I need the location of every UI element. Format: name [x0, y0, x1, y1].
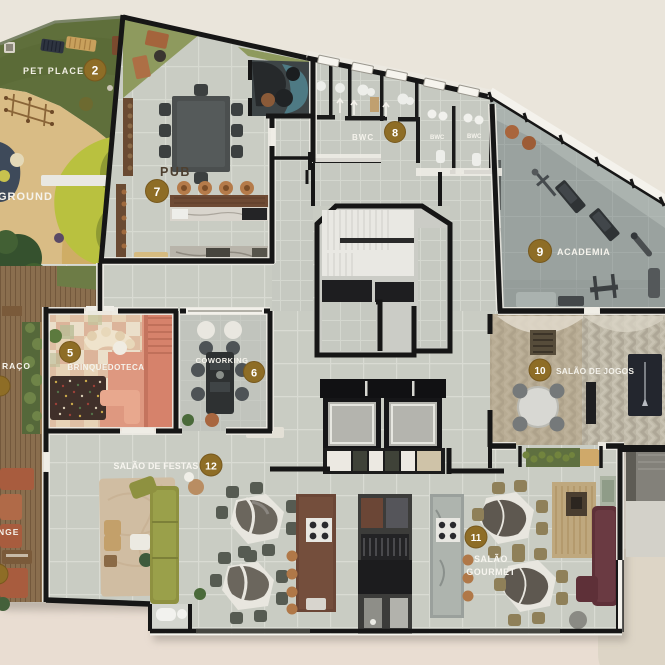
svg-text:BRINQUEDOTECA: BRINQUEDOTECA: [67, 363, 144, 372]
svg-text:7: 7: [154, 185, 161, 199]
svg-text:6: 6: [251, 368, 257, 380]
svg-text:BWC: BWC: [430, 135, 445, 141]
svg-text:9: 9: [537, 245, 544, 259]
svg-text:SALÃO: SALÃO: [474, 554, 508, 564]
svg-text:5: 5: [67, 348, 73, 360]
svg-text:GOURMET: GOURMET: [466, 567, 515, 577]
svg-text:GROUND: GROUND: [0, 191, 53, 203]
svg-text:10: 10: [534, 366, 546, 377]
svg-text:8: 8: [392, 128, 398, 140]
svg-text:RAÇO: RAÇO: [2, 361, 31, 371]
svg-text:SALÃO DE JOGOS: SALÃO DE JOGOS: [556, 366, 634, 376]
svg-text:2: 2: [92, 64, 99, 78]
svg-text:NGE: NGE: [0, 527, 19, 537]
svg-text:BWC: BWC: [467, 134, 482, 140]
svg-text:PET PLACE: PET PLACE: [23, 66, 84, 76]
svg-text:ACADEMIA: ACADEMIA: [557, 247, 610, 257]
svg-text:11: 11: [471, 533, 482, 544]
svg-text:BWC: BWC: [352, 133, 374, 142]
svg-text:PUB: PUB: [160, 165, 191, 179]
svg-text:SALÃO DE FESTAS: SALÃO DE FESTAS: [114, 461, 199, 471]
svg-text:COWORKING: COWORKING: [196, 356, 249, 365]
svg-text:12: 12: [205, 461, 217, 473]
